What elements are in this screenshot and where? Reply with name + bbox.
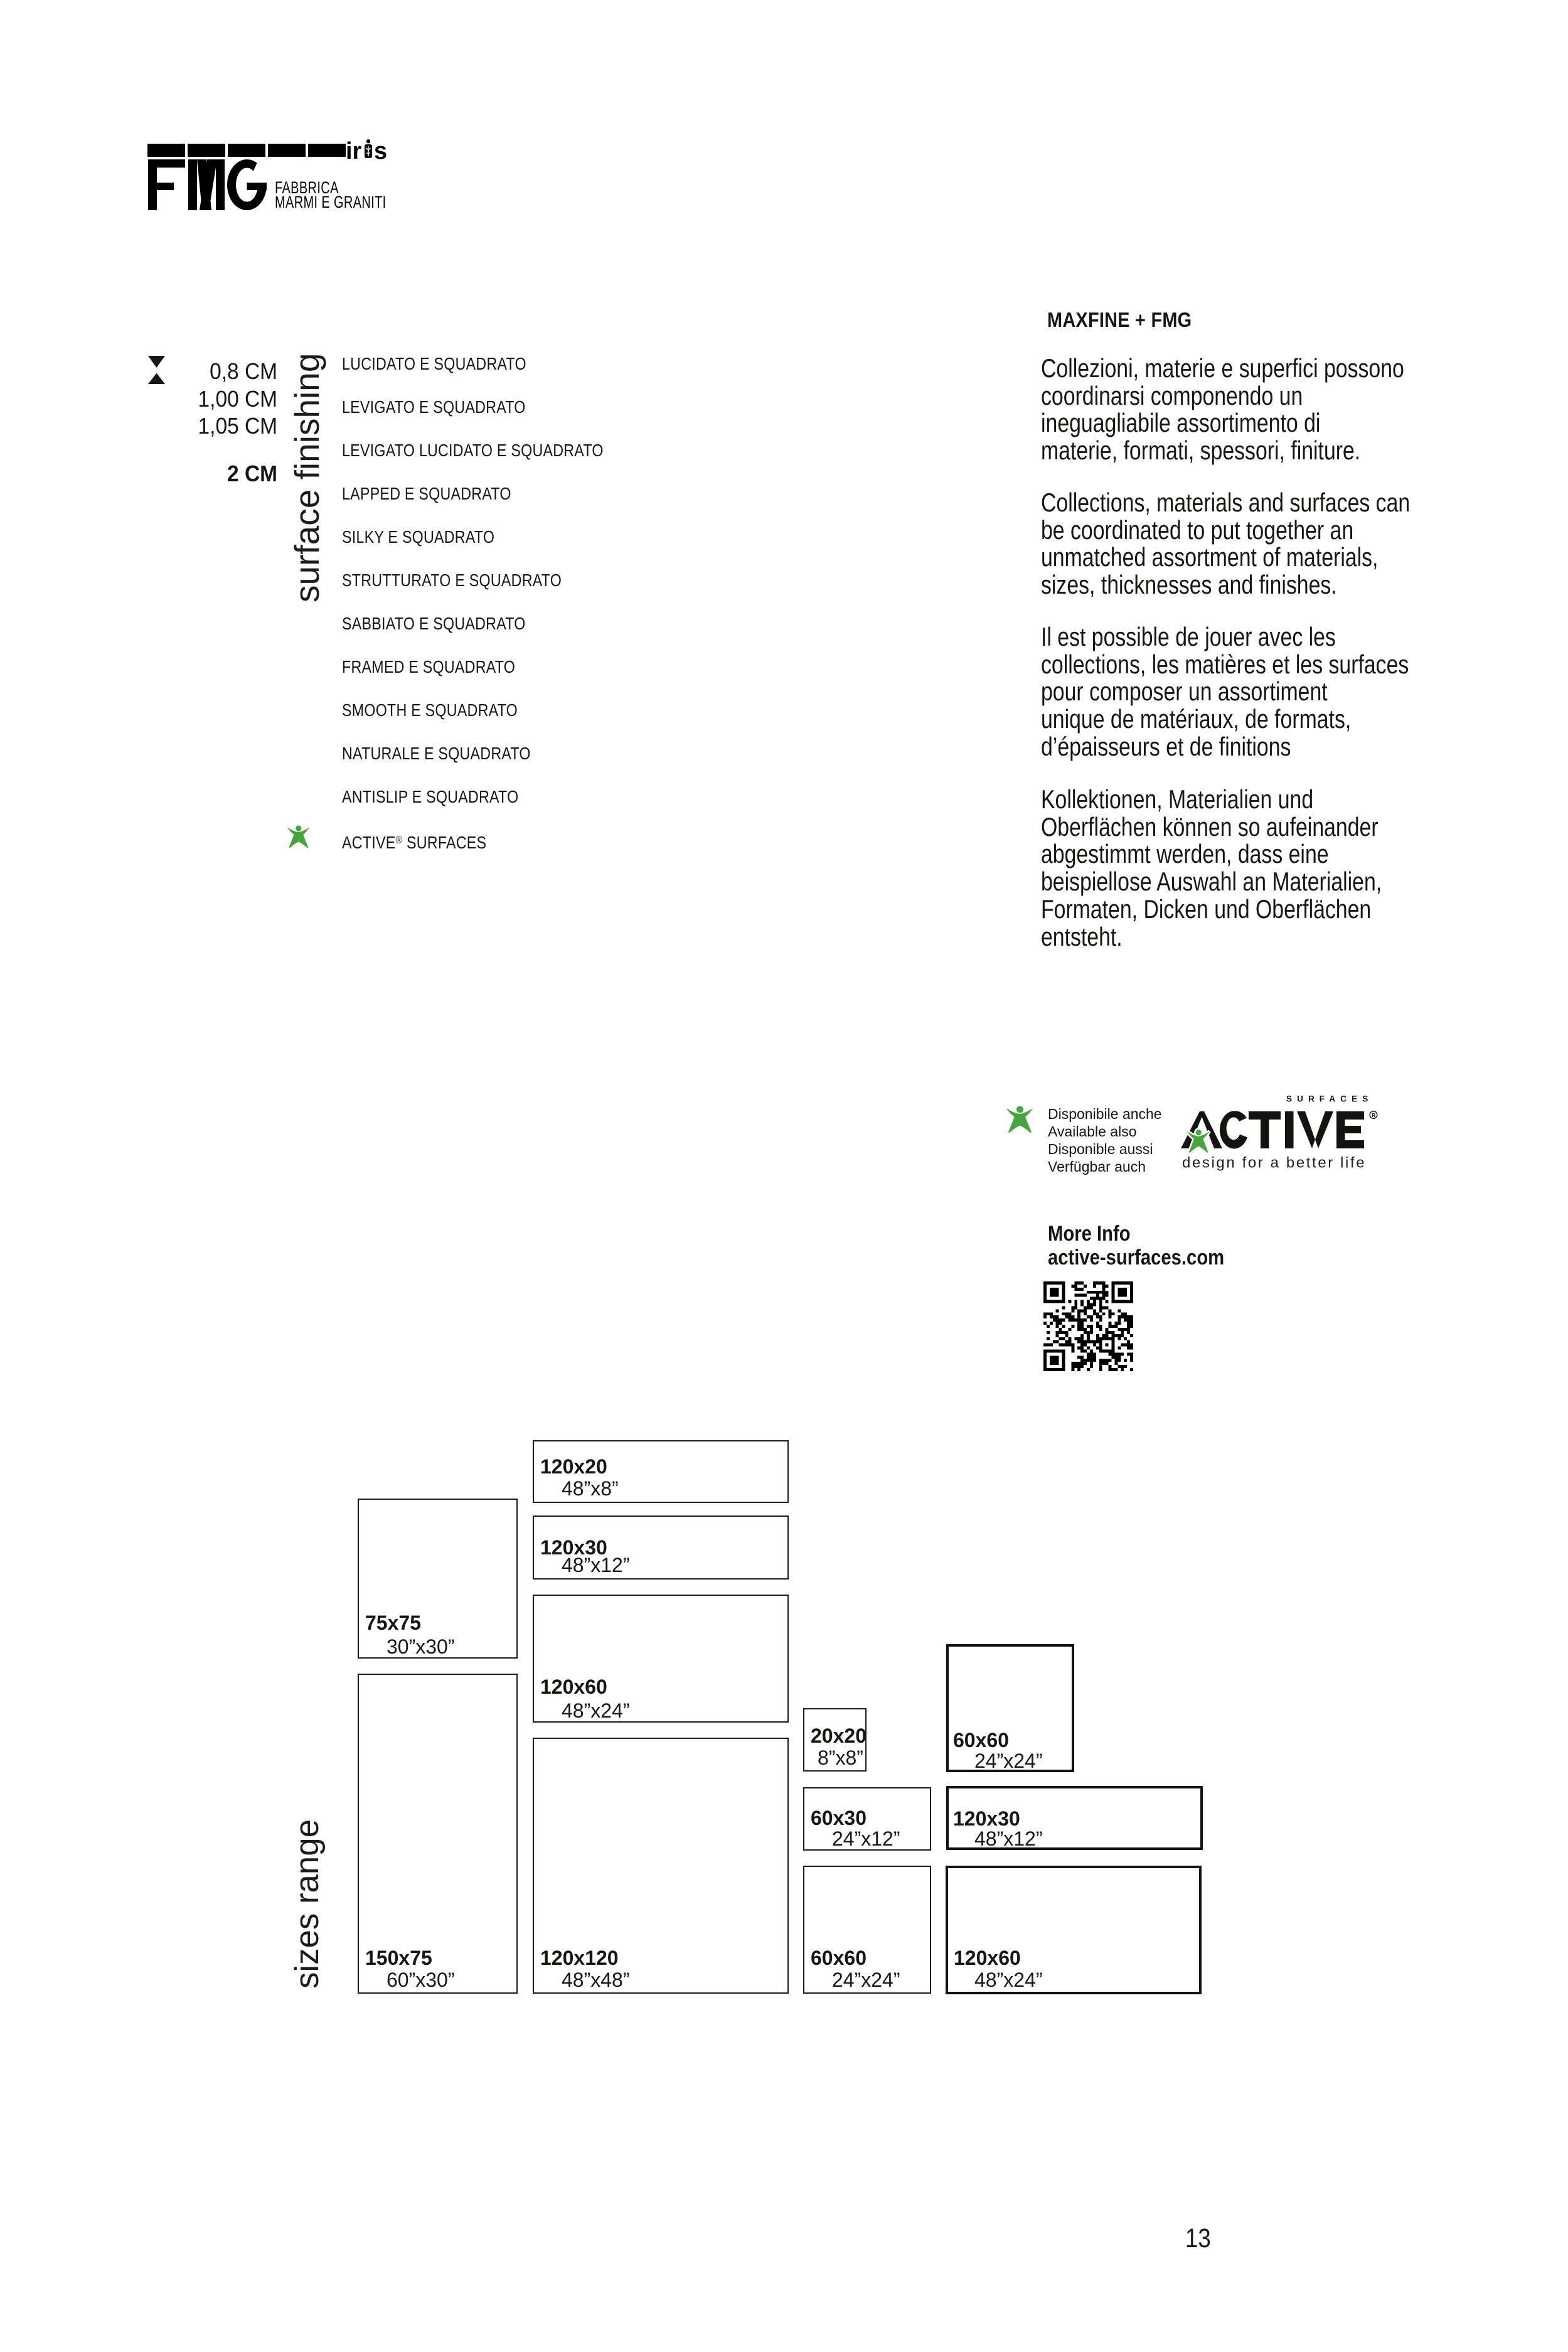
svg-text:SURFACES: SURFACES <box>1286 1094 1373 1104</box>
svg-text:R: R <box>1372 1113 1376 1118</box>
svg-text:design for a better life: design for a better life <box>1182 1155 1366 1172</box>
